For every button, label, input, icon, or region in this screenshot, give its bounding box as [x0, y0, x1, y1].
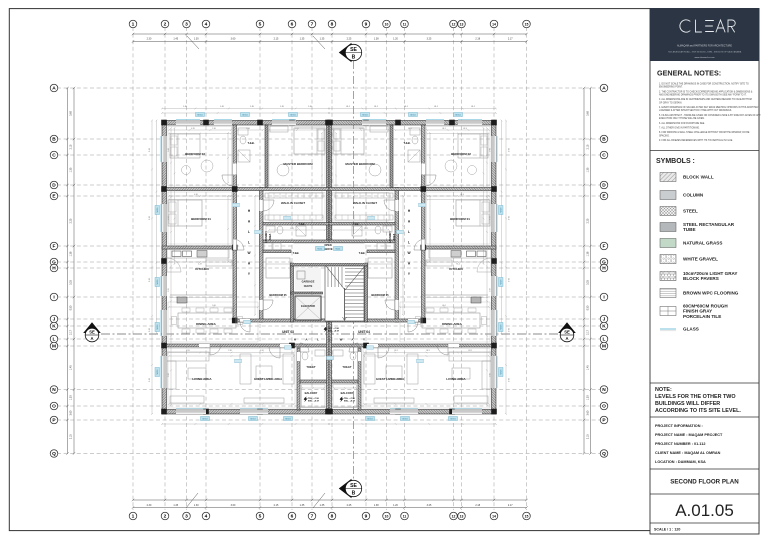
svg-text:W-10: W-10: [250, 419, 256, 421]
svg-text:H: H: [602, 266, 606, 272]
svg-text:SE: SE: [89, 330, 95, 335]
svg-text:W-11: W-11: [317, 249, 323, 251]
svg-text:1.38: 1.38: [374, 37, 379, 40]
svg-text:4.47: 4.47: [198, 263, 202, 265]
svg-text:10: 10: [385, 515, 389, 519]
svg-text:TEL. +7.50: TEL. +7.50: [328, 328, 340, 330]
svg-text:3.10: 3.10: [149, 148, 151, 152]
svg-text:BEDROOM 01: BEDROOM 01: [450, 217, 470, 221]
svg-text:SE: SE: [350, 47, 357, 53]
svg-text:1.20: 1.20: [393, 37, 398, 40]
svg-text:3.10: 3.10: [149, 328, 151, 332]
svg-text:8: 8: [331, 22, 334, 28]
svg-text:7: 7: [311, 22, 314, 28]
svg-text:K: K: [52, 324, 56, 330]
svg-text:T.&B.: T.&B.: [293, 251, 300, 255]
svg-text:1.45: 1.45: [173, 37, 178, 40]
svg-text:LIVING AREA: LIVING AREA: [192, 377, 212, 381]
svg-text:WHITE GRAVEL: WHITE GRAVEL: [683, 257, 718, 262]
svg-text:BEDROOM 03: BEDROOM 03: [185, 152, 205, 156]
svg-text:2.18: 2.18: [475, 37, 480, 40]
svg-text:3.60: 3.60: [586, 111, 589, 116]
svg-text:2.30: 2.30: [228, 350, 232, 352]
svg-text:M: M: [602, 344, 606, 350]
svg-text:1: 1: [132, 514, 135, 520]
svg-text:2.15: 2.15: [70, 144, 73, 149]
svg-text:L: L: [248, 241, 250, 245]
svg-text:GUEST LIVING AREA: GUEST LIVING AREA: [254, 377, 282, 381]
svg-text:5: 5: [259, 22, 262, 28]
svg-text:1.30: 1.30: [70, 395, 73, 400]
svg-text:2.15: 2.15: [274, 37, 279, 40]
svg-text:W: W: [340, 338, 343, 342]
svg-text:PROJECT INFORMATION :: PROJECT INFORMATION :: [655, 424, 703, 428]
svg-text:2.17: 2.17: [586, 330, 589, 335]
svg-text:4: 4: [205, 22, 208, 28]
svg-text:J: J: [603, 317, 606, 323]
svg-text:6: 6: [291, 22, 294, 28]
svg-text:1. DO NOT SCALE THE DRAWINGS I: 1. DO NOT SCALE THE DRAWINGS IN CASE FOR…: [659, 83, 749, 86]
svg-text:2.25: 2.25: [70, 218, 73, 223]
svg-text:7: 7: [311, 514, 314, 520]
svg-text:SPACING .: SPACING .: [659, 134, 671, 137]
svg-text:1.35: 1.35: [300, 37, 305, 40]
svg-text:Y: Y: [363, 338, 365, 342]
svg-text:C: C: [52, 153, 56, 159]
svg-text:Q: Q: [52, 451, 56, 457]
svg-text:6: 6: [291, 514, 294, 520]
svg-text:3.10: 3.10: [149, 278, 151, 282]
svg-text:3: 3: [185, 514, 188, 520]
svg-text:UNIT 03: UNIT 03: [282, 330, 294, 334]
svg-text:BROWN WPC FLOORING: BROWN WPC FLOORING: [683, 291, 739, 296]
svg-text:MASTER BEDROOM: MASTER BEDROOM: [283, 162, 313, 166]
svg-text:OPEN: OPEN: [324, 243, 331, 247]
svg-text:3.60: 3.60: [70, 410, 73, 415]
svg-text:1.30: 1.30: [586, 395, 589, 400]
svg-text:6. ALL DIMENSIONS FOR FURNITUR: 6. ALL DIMENSIONS FOR FURNITURE SEE.: [659, 122, 705, 125]
svg-text:AREA: AREA: [269, 233, 272, 240]
svg-text:3.60: 3.60: [231, 504, 236, 507]
svg-text:GARBAGE: GARBAGE: [302, 281, 315, 284]
svg-text:B: B: [602, 137, 606, 143]
svg-text:BSL. +9.07: BSL. +9.07: [308, 401, 320, 403]
svg-text:3.10: 3.10: [149, 378, 151, 382]
svg-text:LOCATION : DAMMAM, KSA: LOCATION : DAMMAM, KSA: [655, 460, 706, 464]
svg-text:LICENSED & ATTER INTENT SECTIO: LICENSED & ATTER INTENT SECTION / TIME W…: [659, 109, 732, 112]
svg-text:LEVELS FOR THE OTHER TWO: LEVELS FOR THE OTHER TWO: [655, 394, 736, 400]
svg-text:OF GRAY TO OBTAIN.: OF GRAY TO OBTAIN.: [659, 101, 682, 104]
svg-text:1.45: 1.45: [250, 106, 254, 108]
svg-text:AREA: AREA: [393, 233, 396, 240]
svg-text:2. THE CONTRACTOR IS TO CHECK/: 2. THE CONTRACTOR IS TO CHECK/CORRESPOND…: [659, 90, 753, 93]
svg-text:W: W: [247, 251, 250, 255]
svg-text:L: L: [317, 338, 319, 342]
svg-text:L: L: [248, 230, 250, 234]
svg-text:3.25: 3.25: [427, 37, 432, 40]
svg-text:1.45: 1.45: [70, 365, 73, 370]
svg-text:UNIT 04: UNIT 04: [358, 330, 370, 334]
svg-text:O: O: [52, 404, 56, 410]
svg-text:T.&B.: T.&B.: [404, 141, 411, 145]
svg-text:1.45: 1.45: [220, 106, 224, 108]
svg-text:1.45: 1.45: [308, 106, 312, 108]
svg-text:T.&B.: T.&B.: [299, 222, 306, 226]
svg-text:NOTE:: NOTE:: [655, 387, 672, 393]
svg-text:2.17: 2.17: [508, 504, 513, 507]
svg-text:2: 2: [164, 514, 167, 520]
svg-text:Q: Q: [602, 451, 606, 457]
svg-text:L: L: [53, 337, 56, 343]
svg-text:W-10: W-10: [450, 419, 456, 421]
svg-text:STEEL: STEEL: [683, 209, 698, 214]
svg-text:LAUNDRY: LAUNDRY: [265, 231, 268, 243]
svg-text:11: 11: [403, 23, 407, 27]
svg-text:8. FOR WINDOW & WALL STEEL CHA: 8. FOR WINDOW & WALL STEEL CHALLENGE WIT…: [659, 131, 750, 134]
svg-text:W-11: W-11: [335, 249, 341, 251]
svg-text:1.38: 1.38: [374, 504, 379, 507]
svg-text:BUILDINGS WILL DIFFER: BUILDINGS WILL DIFFER: [655, 401, 720, 407]
svg-text:9: 9: [365, 514, 368, 520]
svg-text:WALK-IN CLOSET: WALK-IN CLOSET: [281, 201, 305, 205]
svg-text:K: K: [602, 324, 606, 330]
svg-text:2.15: 2.15: [586, 434, 589, 439]
svg-text:BALCONY: BALCONY: [341, 391, 354, 395]
svg-text:W-10: W-10: [410, 115, 416, 117]
svg-text:3.75: 3.75: [290, 228, 294, 230]
svg-text:ENGINEERING POINT.: ENGINEERING POINT.: [659, 87, 683, 89]
svg-text:BEDROOM 05: BEDROOM 05: [269, 293, 287, 297]
svg-text:GUEST LIVING AREA: GUEST LIVING AREA: [376, 377, 404, 381]
svg-text:1.35: 1.35: [70, 167, 73, 172]
svg-text:4.30: 4.30: [194, 194, 198, 196]
svg-text:A: A: [565, 336, 568, 341]
svg-text:LIVING AREA: LIVING AREA: [446, 377, 466, 381]
svg-text:A: A: [90, 336, 93, 341]
svg-text:4. EVERY DRAWINGS OF VALUED AC: 4. EVERY DRAWINGS OF VALUED ACTED KEY ER…: [659, 106, 760, 109]
svg-text:J: J: [53, 317, 56, 323]
svg-text:W-10: W-10: [367, 419, 373, 421]
svg-text:3.60: 3.60: [586, 410, 589, 415]
svg-text:2.25: 2.25: [347, 504, 352, 507]
svg-text:11: 11: [403, 515, 407, 519]
svg-text:1.30: 1.30: [194, 504, 199, 507]
svg-text:14: 14: [492, 23, 496, 27]
svg-text:SECOND FLOOR PLAN: SECOND FLOOR PLAN: [670, 479, 739, 486]
svg-text:GLASS: GLASS: [683, 327, 699, 332]
svg-text:H: H: [52, 266, 56, 272]
svg-text:TOILET: TOILET: [306, 365, 316, 369]
svg-text:9. FOR ALL FRIEZES REFERENCES: 9. FOR ALL FRIEZES REFERENCES WITH ITS T…: [659, 139, 733, 142]
svg-text:D: D: [52, 183, 56, 189]
svg-text:SE: SE: [350, 483, 357, 489]
svg-text:14: 14: [492, 515, 496, 519]
svg-text:W-10: W-10: [402, 419, 408, 421]
svg-text:M: M: [52, 344, 56, 350]
svg-text:W-10: W-10: [285, 419, 291, 421]
svg-text:O: O: [602, 404, 606, 410]
svg-text:A.01.05: A.01.05: [675, 501, 734, 520]
svg-text:F: F: [603, 244, 606, 250]
svg-text:CHUTE: CHUTE: [304, 285, 313, 288]
svg-text:ACCORDING TO ITS SITE LEVEL.: ACCORDING TO ITS SITE LEVEL.: [655, 408, 741, 414]
svg-text:BEDROOM 01: BEDROOM 01: [191, 217, 211, 221]
svg-text:8: 8: [331, 514, 334, 520]
svg-text:7523 ANJEDUAH ROAD - 3929 SN 3: 7523 ANJEDUAH ROAD - 3929 SN 32034 - DMM…: [668, 51, 742, 54]
svg-text:BLOCK WALL: BLOCK WALL: [683, 175, 714, 180]
svg-text:T.&B.: T.&B.: [248, 141, 255, 145]
svg-text:MASTER BEDROOM: MASTER BEDROOM: [345, 162, 375, 166]
svg-text:3.90: 3.90: [168, 373, 170, 377]
svg-text:PROJECT NAME : MAQAM PROJECT: PROJECT NAME : MAQAM PROJECT: [655, 433, 723, 437]
svg-text:1.35: 1.35: [320, 37, 325, 40]
svg-text:3. ALL DIMENSIONS ARE IN CENTI: 3. ALL DIMENSIONS ARE IN CENTIMETERS AND…: [659, 98, 752, 101]
svg-text:1.45: 1.45: [173, 504, 178, 507]
svg-text:N: N: [52, 387, 56, 393]
svg-text:BLOCK PAVERS: BLOCK PAVERS: [683, 276, 719, 281]
svg-text:DINING AREA: DINING AREA: [442, 322, 463, 326]
svg-text:3.25: 3.25: [70, 280, 73, 285]
svg-text:2.30: 2.30: [147, 37, 152, 40]
svg-text:SYMBOLS :: SYMBOLS :: [656, 158, 695, 165]
svg-text:3.60: 3.60: [70, 111, 73, 116]
svg-text:L: L: [603, 337, 606, 343]
svg-text:1.38: 1.38: [586, 251, 589, 256]
svg-text:D: D: [602, 183, 606, 189]
svg-text:4.35: 4.35: [191, 128, 195, 130]
svg-text:2.30: 2.30: [147, 504, 152, 507]
svg-text:2.25: 2.25: [586, 218, 589, 223]
svg-text:2.95: 2.95: [168, 288, 170, 292]
svg-text:3.25: 3.25: [586, 280, 589, 285]
svg-text:COLUMN: COLUMN: [683, 193, 704, 198]
svg-text:1.45: 1.45: [183, 106, 187, 108]
svg-text:NATURAL GRASS: NATURAL GRASS: [683, 241, 722, 246]
svg-text:2.15: 2.15: [70, 434, 73, 439]
svg-text:2.15: 2.15: [274, 504, 279, 507]
svg-text:LAUNDRY: LAUNDRY: [389, 231, 392, 243]
svg-text:F: F: [53, 244, 56, 250]
svg-text:3.25: 3.25: [427, 504, 432, 507]
svg-text:W-10: W-10: [242, 115, 248, 117]
svg-text:BSL. +9.07: BSL. +9.07: [344, 401, 356, 403]
svg-text:3: 3: [185, 22, 188, 28]
svg-text:C: C: [602, 153, 606, 159]
svg-text:W-10: W-10: [362, 115, 368, 117]
svg-text:www.cleararchs.com: www.cleararchs.com: [694, 56, 714, 59]
svg-text:L: L: [408, 230, 410, 234]
svg-text:BALCONY: BALCONY: [305, 391, 318, 395]
svg-text:PORCELAIN TILE: PORCELAIN TILE: [683, 314, 721, 319]
svg-text:1.30: 1.30: [212, 128, 216, 130]
svg-text:W-10: W-10: [290, 115, 296, 117]
svg-text:W-10: W-10: [202, 419, 208, 421]
svg-text:1.35: 1.35: [300, 504, 305, 507]
svg-text:1.30: 1.30: [194, 37, 199, 40]
svg-text:AND ENGINEERING DRAWINGS PRIOR: AND ENGINEERING DRAWINGS PRIOR TO ITS OW…: [659, 94, 747, 97]
svg-text:DINING AREA: DINING AREA: [196, 322, 217, 326]
svg-text:N: N: [602, 387, 606, 393]
svg-text:BSL. +9.07: BSL. +9.07: [328, 331, 340, 333]
svg-text:1.45: 1.45: [586, 365, 589, 370]
svg-text:A: A: [52, 86, 56, 92]
svg-text:BEDROOM 02: BEDROOM 02: [451, 152, 471, 156]
svg-text:7. ALL OTHER GIVE IN PARTITION: 7. ALL OTHER GIVE IN PARTITIONING.: [659, 126, 700, 129]
svg-text:ALMAQAM and PARTNERS FOR ARCHI: ALMAQAM and PARTNERS FOR ARCHITECTURE: [677, 45, 732, 48]
svg-text:GENERAL NOTES:: GENERAL NOTES:: [657, 69, 721, 78]
svg-text:2.17: 2.17: [70, 330, 73, 335]
svg-text:ABOVE: ABOVE: [323, 247, 332, 251]
svg-text:5. FILING ARCHITECT - HARDLINE: 5. FILING ARCHITECT - HARDLINE GIVEN OR …: [659, 114, 761, 117]
svg-text:1.20: 1.20: [393, 504, 398, 507]
svg-text:L: L: [329, 338, 331, 342]
svg-text:ELEVATOR: ELEVATOR: [301, 304, 315, 308]
svg-text:15: 15: [525, 23, 529, 27]
svg-text:1.35: 1.35: [586, 167, 589, 172]
svg-text:2.18: 2.18: [475, 504, 480, 507]
svg-text:2.17: 2.17: [508, 37, 513, 40]
svg-text:2.15: 2.15: [586, 144, 589, 149]
svg-text:H: H: [294, 338, 296, 342]
svg-text:5: 5: [259, 514, 262, 520]
svg-text:EXECUTION ONLY THOSE WILL BE G: EXECUTION ONLY THOSE WILL BE GIVEN.: [659, 118, 705, 120]
svg-text:KITCHEN: KITCHEN: [449, 267, 462, 271]
svg-text:10: 10: [385, 23, 389, 27]
svg-text:12: 12: [452, 515, 456, 519]
svg-text:2: 2: [164, 22, 167, 28]
svg-text:1.38: 1.38: [70, 251, 73, 256]
svg-text:T.&B.: T.&B.: [353, 222, 360, 226]
svg-text:4: 4: [205, 514, 208, 520]
svg-text:B: B: [352, 55, 356, 61]
svg-text:TOILET: TOILET: [342, 365, 352, 369]
svg-text:T.&B.: T.&B.: [359, 251, 366, 255]
svg-text:15: 15: [525, 515, 529, 519]
svg-text:SCALE / 1 : 120: SCALE / 1 : 120: [654, 528, 680, 532]
svg-text:L: L: [408, 241, 410, 245]
svg-text:TEL. +7.50: TEL. +7.50: [344, 398, 356, 400]
svg-text:2.25: 2.25: [347, 37, 352, 40]
svg-text:W-10: W-10: [197, 115, 203, 117]
svg-text:1.35: 1.35: [320, 504, 325, 507]
svg-text:B: B: [52, 137, 56, 143]
svg-text:A: A: [602, 86, 606, 92]
svg-text:SE: SE: [564, 330, 570, 335]
svg-text:12: 12: [452, 23, 456, 27]
svg-text:13: 13: [460, 515, 464, 519]
svg-text:BEDROOM 05: BEDROOM 05: [371, 293, 389, 297]
svg-text:13: 13: [460, 23, 464, 27]
svg-text:1.45: 1.45: [280, 106, 284, 108]
svg-text:1: 1: [132, 22, 135, 28]
svg-text:0.50: 0.50: [70, 305, 73, 310]
svg-text:PROJECT NUMBER : 01.112: PROJECT NUMBER : 01.112: [655, 442, 705, 446]
svg-text:W-10: W-10: [455, 115, 461, 117]
svg-text:3.60: 3.60: [231, 37, 236, 40]
svg-text:3.10: 3.10: [149, 216, 151, 220]
svg-text:CLIENT NAME : MAQAM AL OMRAN: CLIENT NAME : MAQAM AL OMRAN: [655, 451, 721, 455]
svg-text:TEL. +7.50: TEL. +7.50: [308, 398, 320, 400]
svg-text:9: 9: [365, 22, 368, 28]
svg-text:B: B: [352, 491, 356, 497]
svg-text:0.50: 0.50: [586, 305, 589, 310]
svg-text:WALK-IN CLOSET: WALK-IN CLOSET: [353, 201, 377, 205]
svg-text:W: W: [407, 251, 410, 255]
svg-text:TUBE: TUBE: [683, 227, 696, 232]
svg-text:KITCHEN: KITCHEN: [195, 267, 208, 271]
